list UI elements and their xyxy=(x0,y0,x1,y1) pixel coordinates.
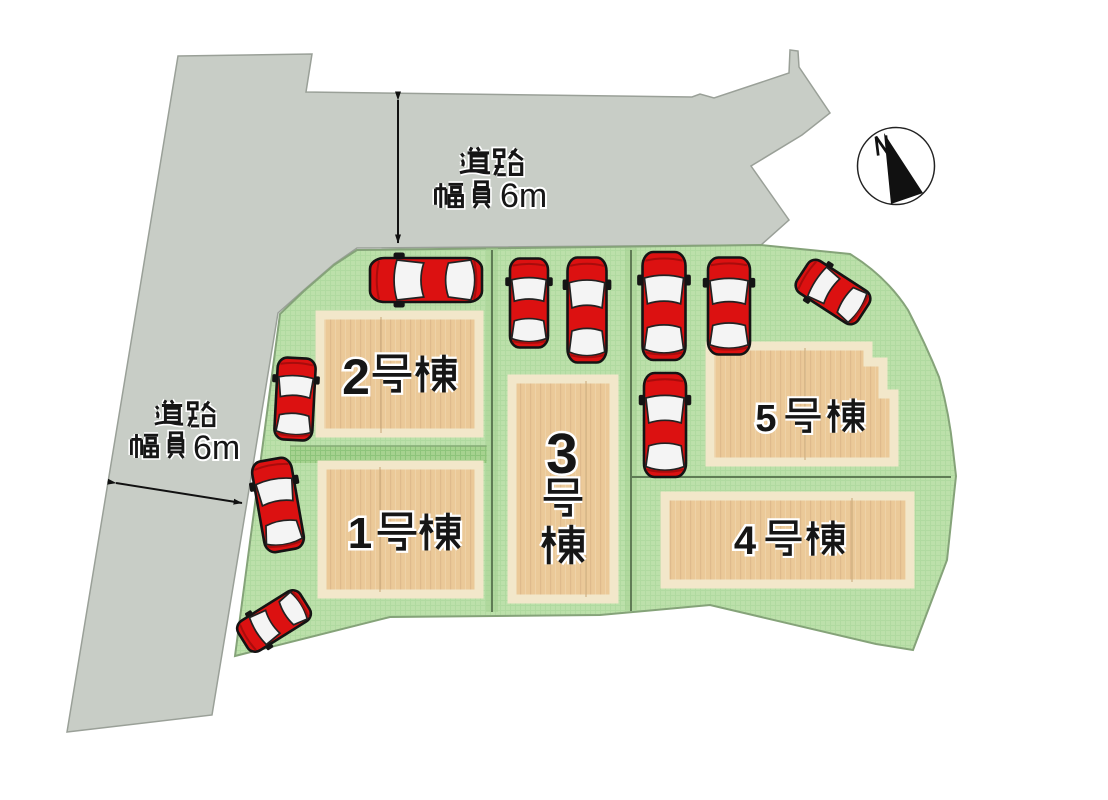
svg-text:4: 4 xyxy=(734,519,757,563)
svg-text:6m: 6m xyxy=(500,177,547,215)
svg-text:5: 5 xyxy=(755,398,776,440)
svg-text:1: 1 xyxy=(348,509,372,558)
svg-text:2: 2 xyxy=(342,349,370,405)
svg-text:6m: 6m xyxy=(193,429,240,467)
